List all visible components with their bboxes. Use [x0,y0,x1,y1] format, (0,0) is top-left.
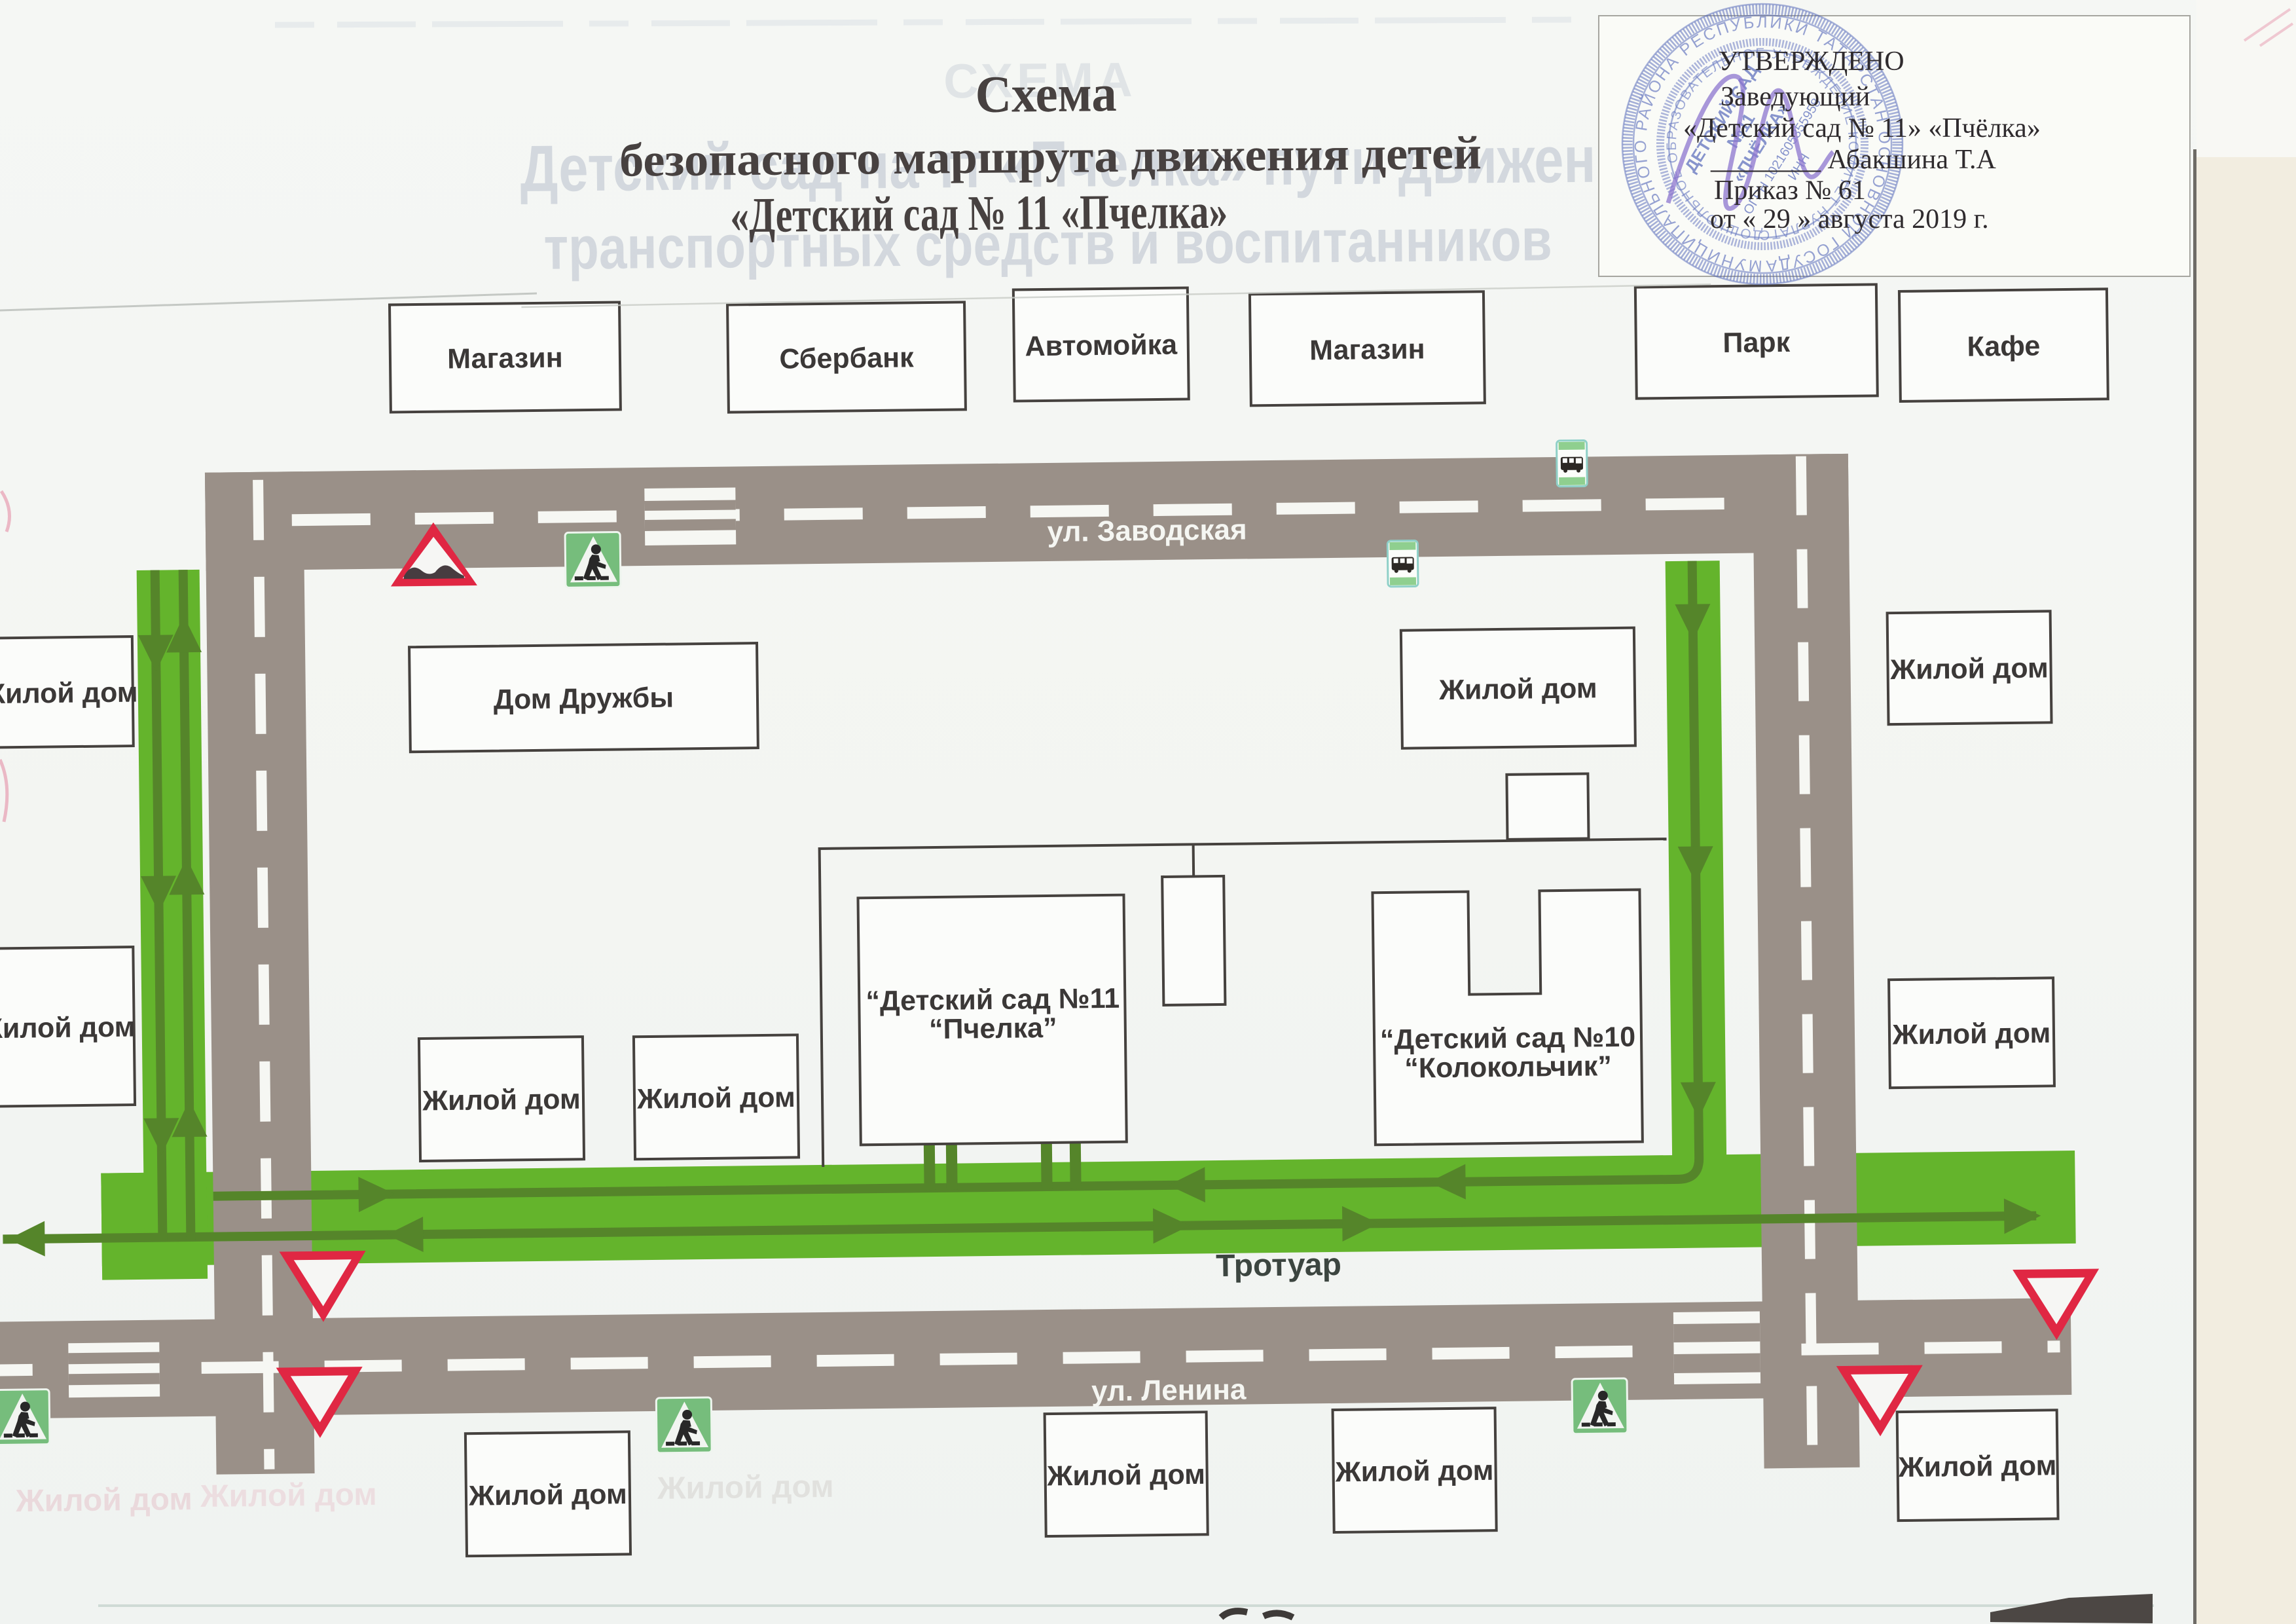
svg-text:Жилой дом: Жилой дом [422,1084,581,1117]
svg-text:Кафе: Кафе [1967,330,2040,362]
svg-text:«Детский сад № 11 «Пчелка»: «Детский сад № 11 «Пчелка» [730,184,1228,244]
svg-text:Жилой дом: Жилой дом [657,1469,834,1506]
svg-text:________ Абакшина Т.А: ________ Абакшина Т.А [1710,145,1997,175]
svg-text:“Колокольчик”: “Колокольчик” [1404,1050,1612,1084]
svg-text:Жилой дом: Жилой дом [1898,1450,2057,1483]
svg-text:“Детский сад №11: “Детский сад №11 [866,983,1120,1017]
svg-text:Заведующий: Заведующий [1721,82,1870,112]
svg-text:Магазин: Магазин [447,342,563,375]
svg-text:Жилой дом: Жилой дом [1438,673,1597,706]
svg-text:ул. Ленина: ул. Ленина [1091,1374,1247,1408]
svg-text:Сбербанк: Сбербанк [779,342,914,375]
svg-text:Жилой дом: Жилой дом [636,1082,795,1115]
svg-text:УТВЕРЖДЕНО: УТВЕРЖДЕНО [1719,46,1904,77]
svg-text:ул. Заводская: ул. Заводская [1047,513,1247,548]
svg-text:“Пчелка”: “Пчелка” [929,1012,1057,1045]
svg-text:Жилой дом: Жилой дом [1046,1459,1205,1492]
svg-text:Схема: Схема [975,65,1117,124]
svg-text:Жилой дом: Жилой дом [1891,1018,2050,1051]
svg-text:Жилой дом: Жилой дом [0,1012,136,1045]
svg-text:Парк: Парк [1722,327,1791,359]
svg-text:«Детский сад № 11» «Пчёлка»: «Детский сад № 11» «Пчёлка» [1683,113,2041,143]
svg-text:от « 29 » августа 2019 г.: от « 29 » августа 2019 г. [1710,204,1989,234]
svg-text:безопасного маршрута движения: безопасного маршрута движения детей [619,126,1482,186]
svg-text:Автомойка: Автомойка [1025,329,1178,363]
svg-text:Жилой дом: Жилой дом [1889,652,2049,686]
svg-text:Жилой дом: Жилой дом [200,1477,377,1514]
svg-text:Жилой дом: Жилой дом [15,1482,192,1519]
svg-text:Магазин: Магазин [1309,333,1425,366]
svg-text:Жилой дом: Жилой дом [468,1479,627,1512]
svg-text:Жилой дом: Жилой дом [0,676,138,710]
svg-text:Жилой дом: Жилой дом [1335,1455,1494,1488]
svg-text:Дом Дружбы: Дом Дружбы [494,682,674,716]
svg-text:Приказ № 61: Приказ № 61 [1714,175,1866,206]
svg-text:Тротуар: Тротуар [1216,1247,1341,1283]
